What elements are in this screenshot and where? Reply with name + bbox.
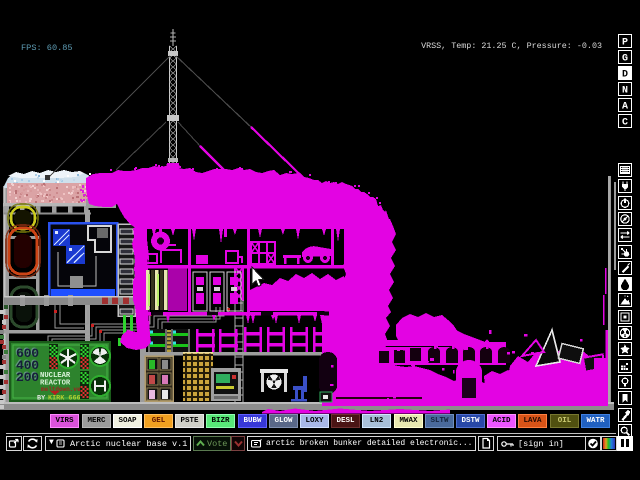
svg-text:G: G (622, 54, 628, 65)
svg-text:VRSS, Temp: 21.25 C, Pressure:: VRSS, Temp: 21.25 C, Pressure: -0.03 (421, 41, 602, 51)
svg-text:P: P (622, 38, 628, 49)
svg-text:meltdown.ver: meltdown.ver (41, 386, 85, 393)
svg-text:A: A (622, 102, 628, 113)
svg-text:C: C (622, 118, 628, 129)
svg-text:BY: BY (37, 395, 46, 403)
svg-text:200: 200 (16, 370, 39, 385)
svg-text:FPS: 60.85: FPS: 60.85 (21, 43, 73, 53)
svg-text:N: N (622, 86, 628, 97)
svg-text:KIRK 666: KIRK 666 (48, 395, 81, 403)
svg-text:D: D (622, 70, 628, 81)
